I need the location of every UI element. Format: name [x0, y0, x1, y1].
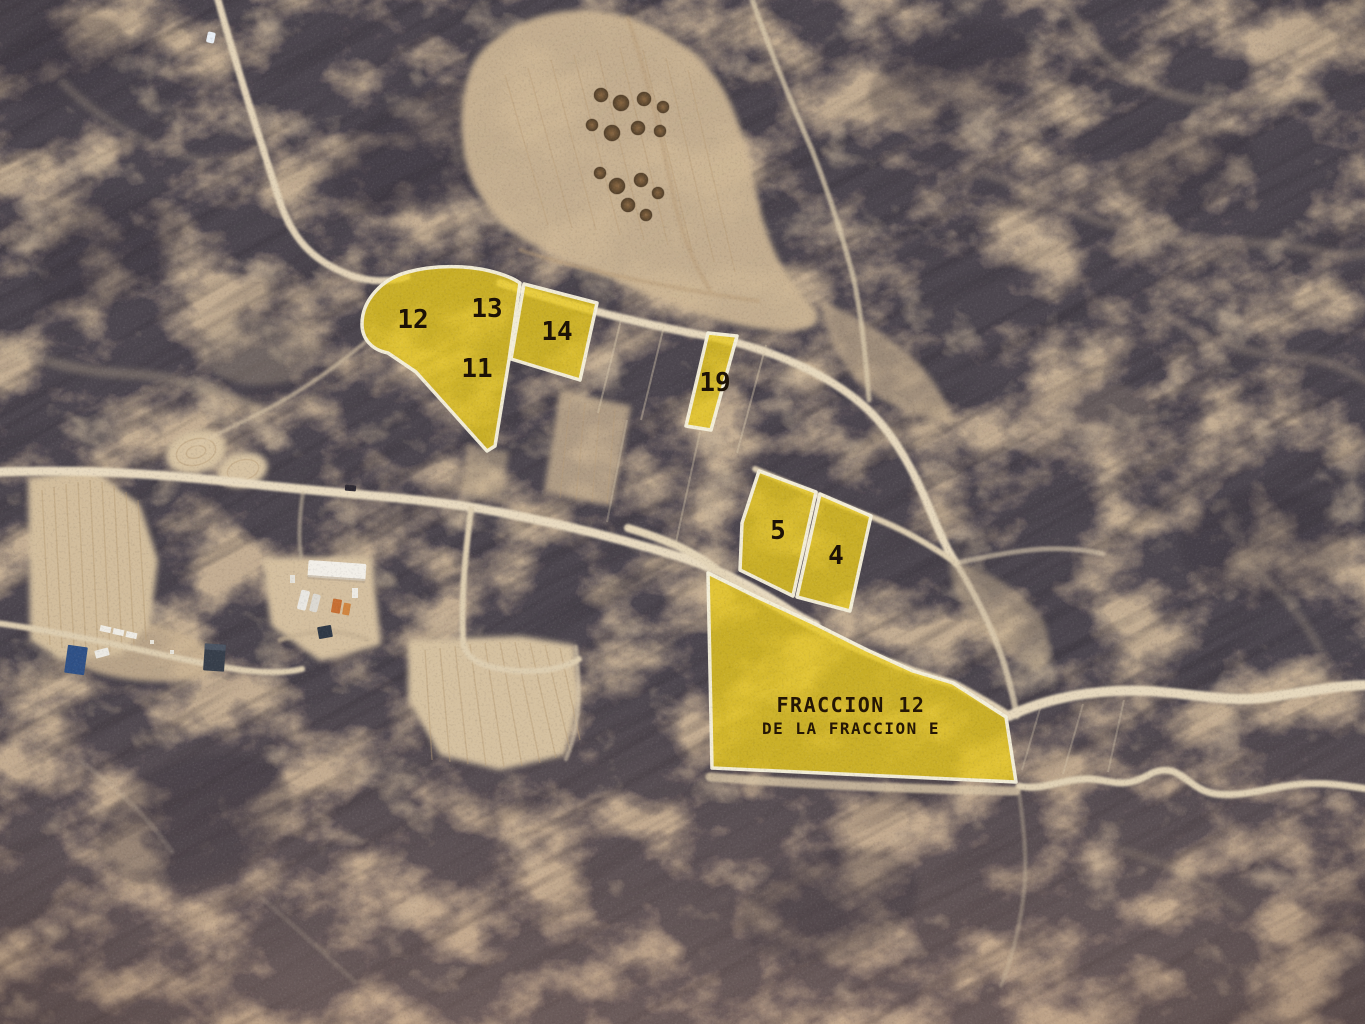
parcel-13-label: 13	[471, 296, 502, 322]
featured-parcel-subtitle: DE LA FRACCION E	[762, 721, 940, 737]
featured-parcel-title: FRACCION 12	[762, 695, 940, 715]
parcel-14-label: 14	[541, 319, 572, 345]
parcel-11-label: 11	[461, 356, 492, 382]
parcel-5-label: 5	[770, 518, 786, 544]
photo-grain	[0, 0, 1365, 1024]
parcel-4-label: 4	[828, 543, 844, 569]
featured-parcel-label: FRACCION 12 DE LA FRACCION E	[762, 695, 940, 737]
parcel-19-label: 19	[699, 370, 730, 396]
aerial-photo: 12 13 14 11 19 5 4 FRACCION 12 DE LA FRA…	[0, 0, 1365, 1024]
parcel-12-label: 12	[397, 307, 428, 333]
aerial-photo-canvas	[0, 0, 1365, 1024]
